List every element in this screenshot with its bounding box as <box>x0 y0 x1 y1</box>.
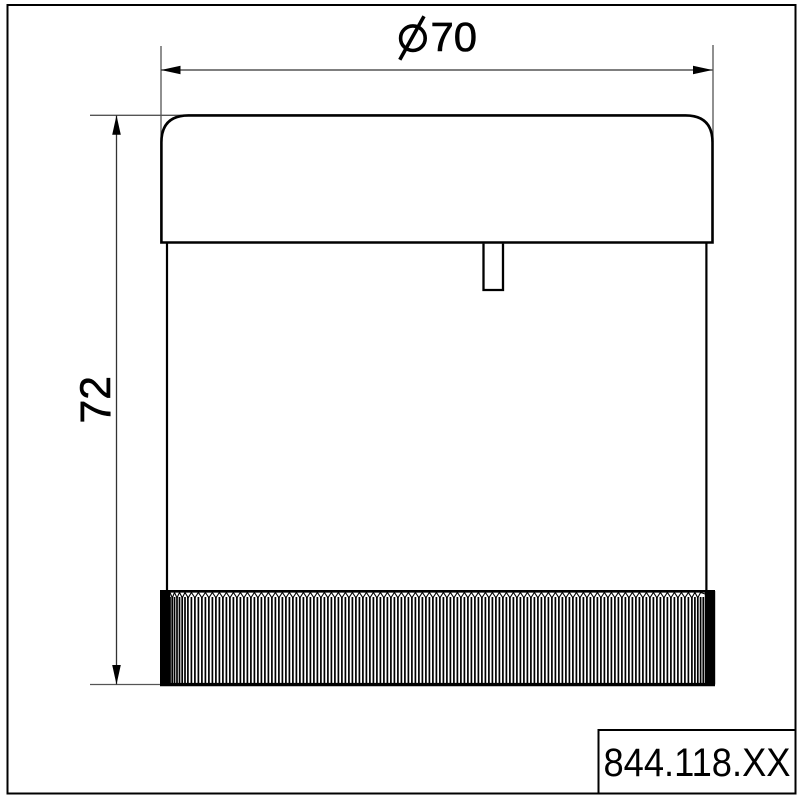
svg-text:844.118.XX: 844.118.XX <box>604 741 791 785</box>
svg-text:70: 70 <box>431 14 478 60</box>
svg-text:72: 72 <box>72 376 120 424</box>
